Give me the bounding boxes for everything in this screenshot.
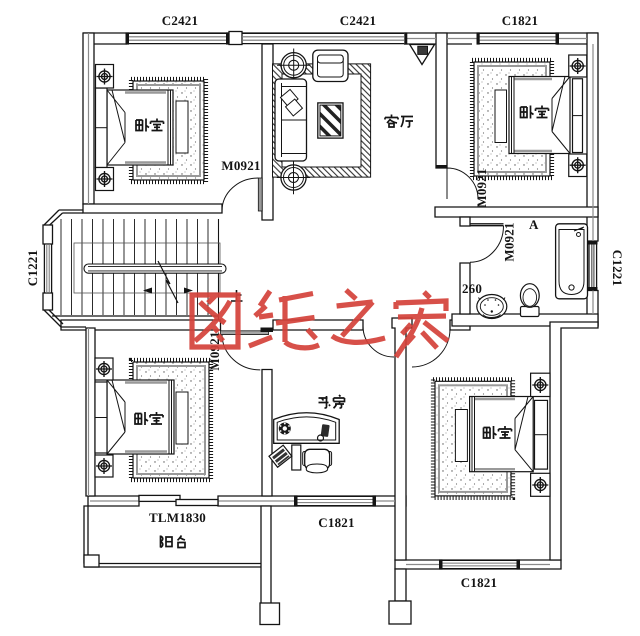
svg-text:C2421: C2421 — [162, 13, 198, 28]
svg-text:C1821: C1821 — [461, 575, 497, 590]
svg-text:A: A — [529, 217, 539, 232]
svg-text:260: 260 — [462, 281, 482, 296]
svg-text:C1821: C1821 — [318, 515, 354, 530]
svg-text:C1221: C1221 — [25, 250, 40, 286]
svg-text:C1221: C1221 — [610, 250, 625, 286]
svg-text:TLM1830: TLM1830 — [149, 510, 206, 525]
svg-text:C1821: C1821 — [502, 13, 538, 28]
svg-text:M0921: M0921 — [221, 158, 260, 173]
svg-text:M0921: M0921 — [502, 222, 517, 261]
svg-text:C2421: C2421 — [340, 13, 376, 28]
svg-text:M0921: M0921 — [474, 168, 489, 207]
